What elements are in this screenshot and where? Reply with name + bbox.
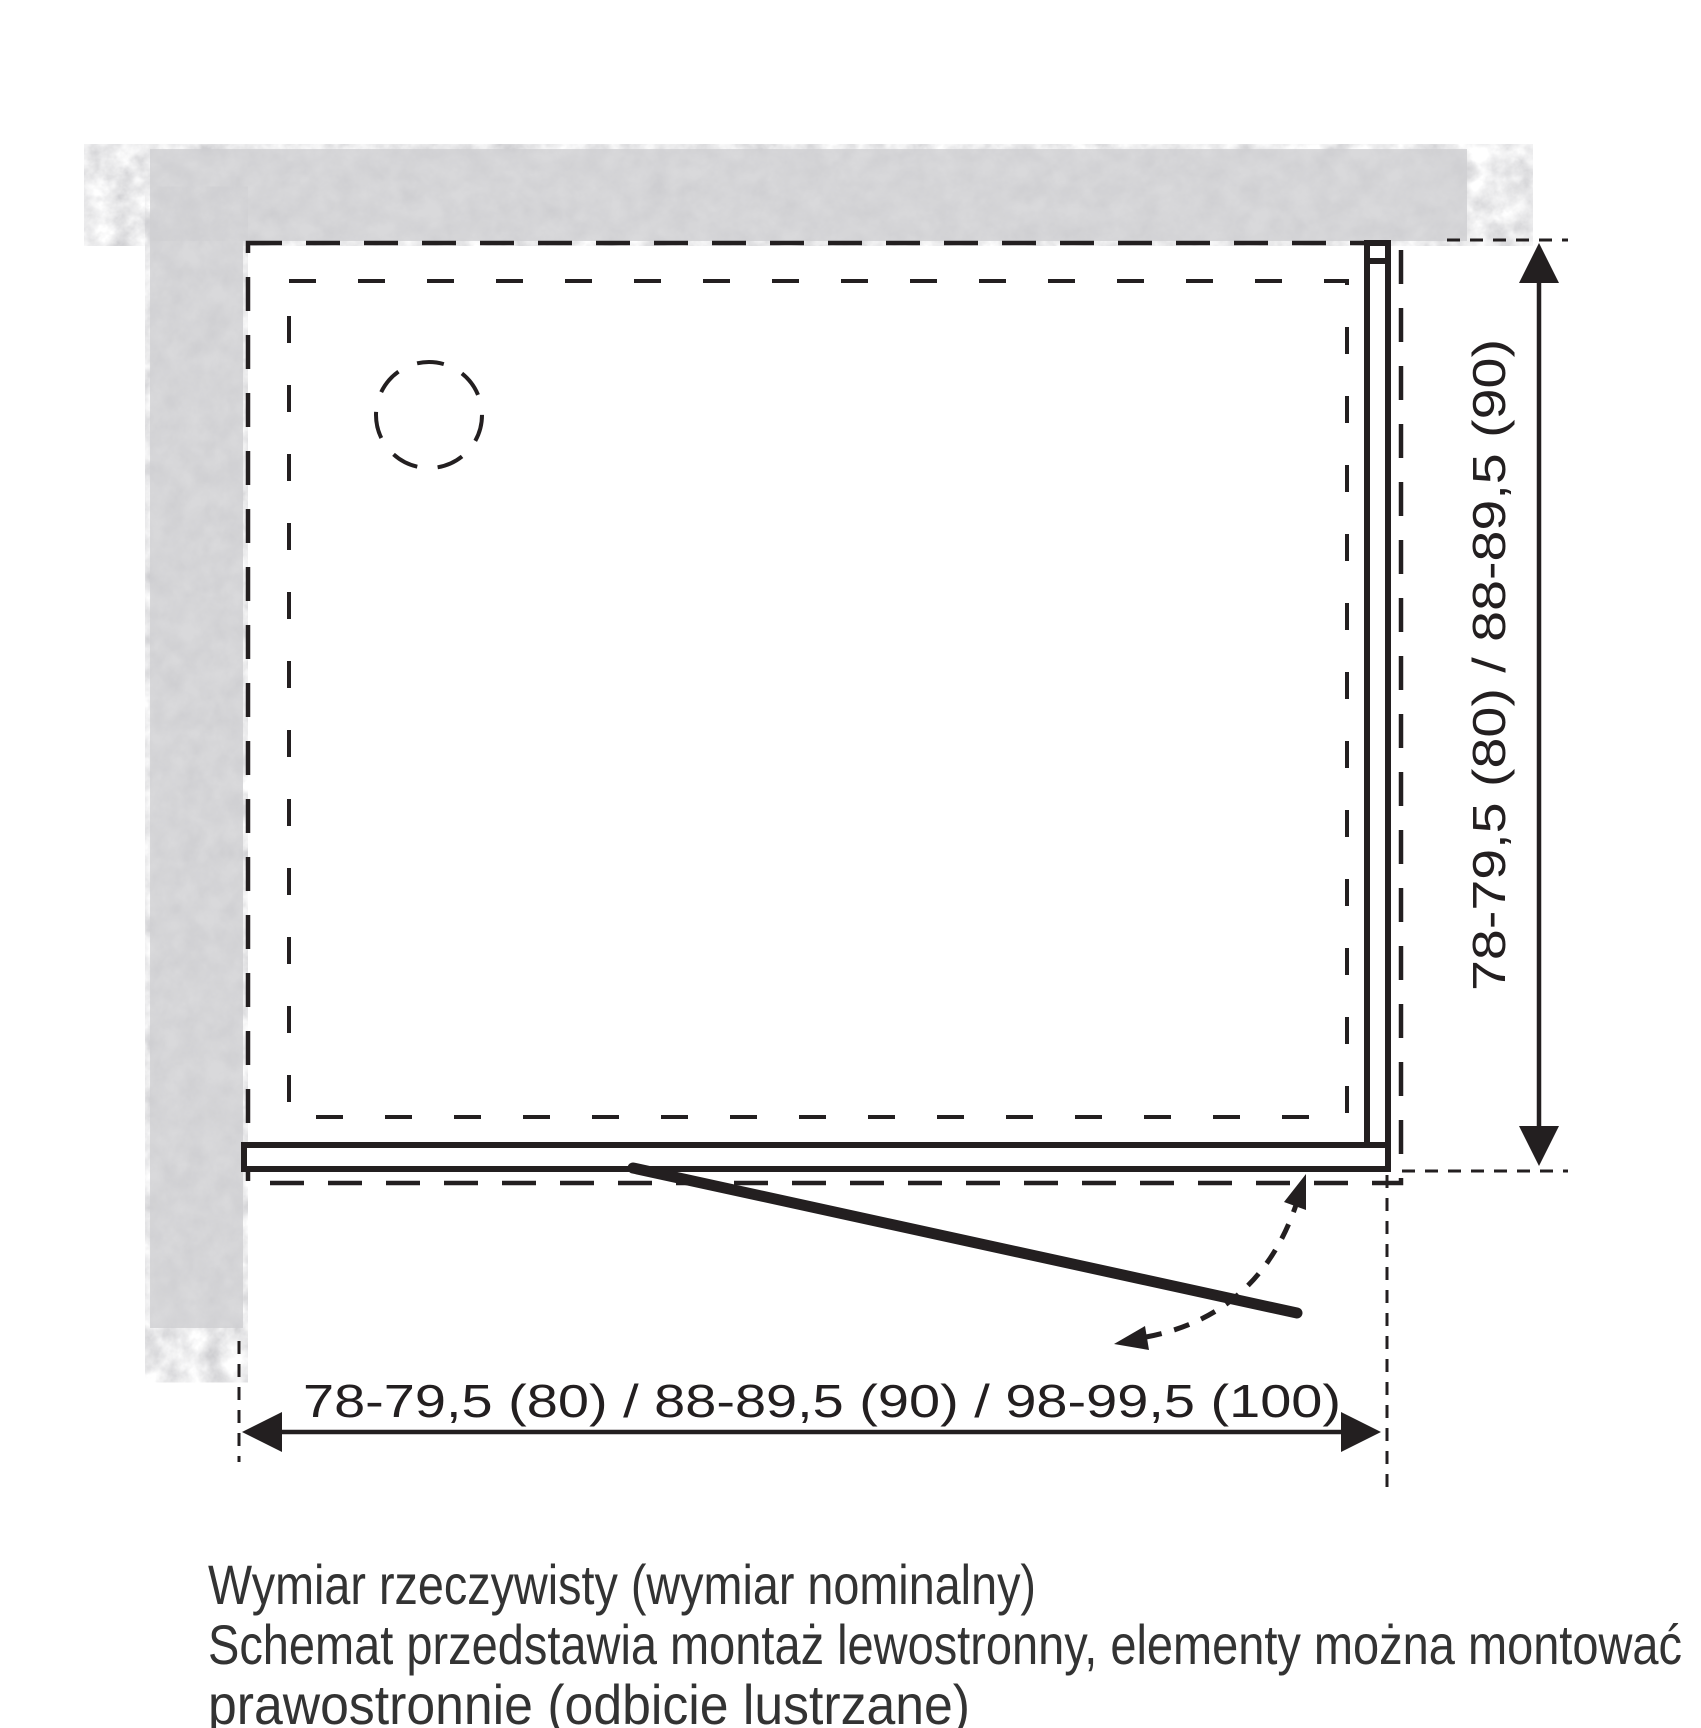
horizontal-dimension-label: 78-79,5 (80) / 88-89,5 (90) / 98-99,5 (1… [303, 1375, 1341, 1427]
shower-tray-outer-outline [248, 243, 1401, 1183]
door-leaf [633, 1168, 1297, 1313]
vertical-dimension: 78-79,5 (80) / 88-89,5 (90) [1402, 240, 1568, 1171]
diagram-canvas: 78-79,5 (80) / 88-89,5 (90) 78-79,5 (80)… [0, 0, 1701, 1728]
vertical-dimension-arrowhead-top [1519, 243, 1559, 283]
installation-diagram: 78-79,5 (80) / 88-89,5 (90) 78-79,5 (80)… [0, 0, 1701, 1728]
side-panel [1367, 243, 1388, 1169]
door-swing-arc [1114, 1174, 1306, 1350]
swing-arrowhead-closed [1284, 1174, 1306, 1210]
top-wall [150, 149, 1467, 241]
shower-tray-inner-outline [289, 281, 1347, 1117]
left-wall [150, 241, 243, 1328]
horizontal-dimension-arrowhead-left [242, 1412, 282, 1452]
swing-arrowhead-open [1114, 1326, 1149, 1350]
horizontal-dimension-arrowhead-right [1341, 1412, 1381, 1452]
vertical-dimension-label: 78-79,5 (80) / 88-89,5 (90) [1463, 339, 1515, 991]
drain-circle [376, 362, 482, 468]
caption-line-3: prawostronnie (odbicie lustrzane) [208, 1673, 970, 1728]
vertical-dimension-arrowhead-bottom [1519, 1126, 1559, 1166]
caption: Wymiar rzeczywisty (wymiar nominalny) Sc… [208, 1553, 1682, 1728]
horizontal-dimension: 78-79,5 (80) / 88-89,5 (90) / 98-99,5 (1… [239, 1175, 1387, 1492]
bottom-rail [244, 1145, 1388, 1169]
caption-line-1: Wymiar rzeczywisty (wymiar nominalny) [208, 1553, 1036, 1616]
caption-line-2: Schemat przedstawia montaż lewostronny, … [208, 1613, 1682, 1676]
